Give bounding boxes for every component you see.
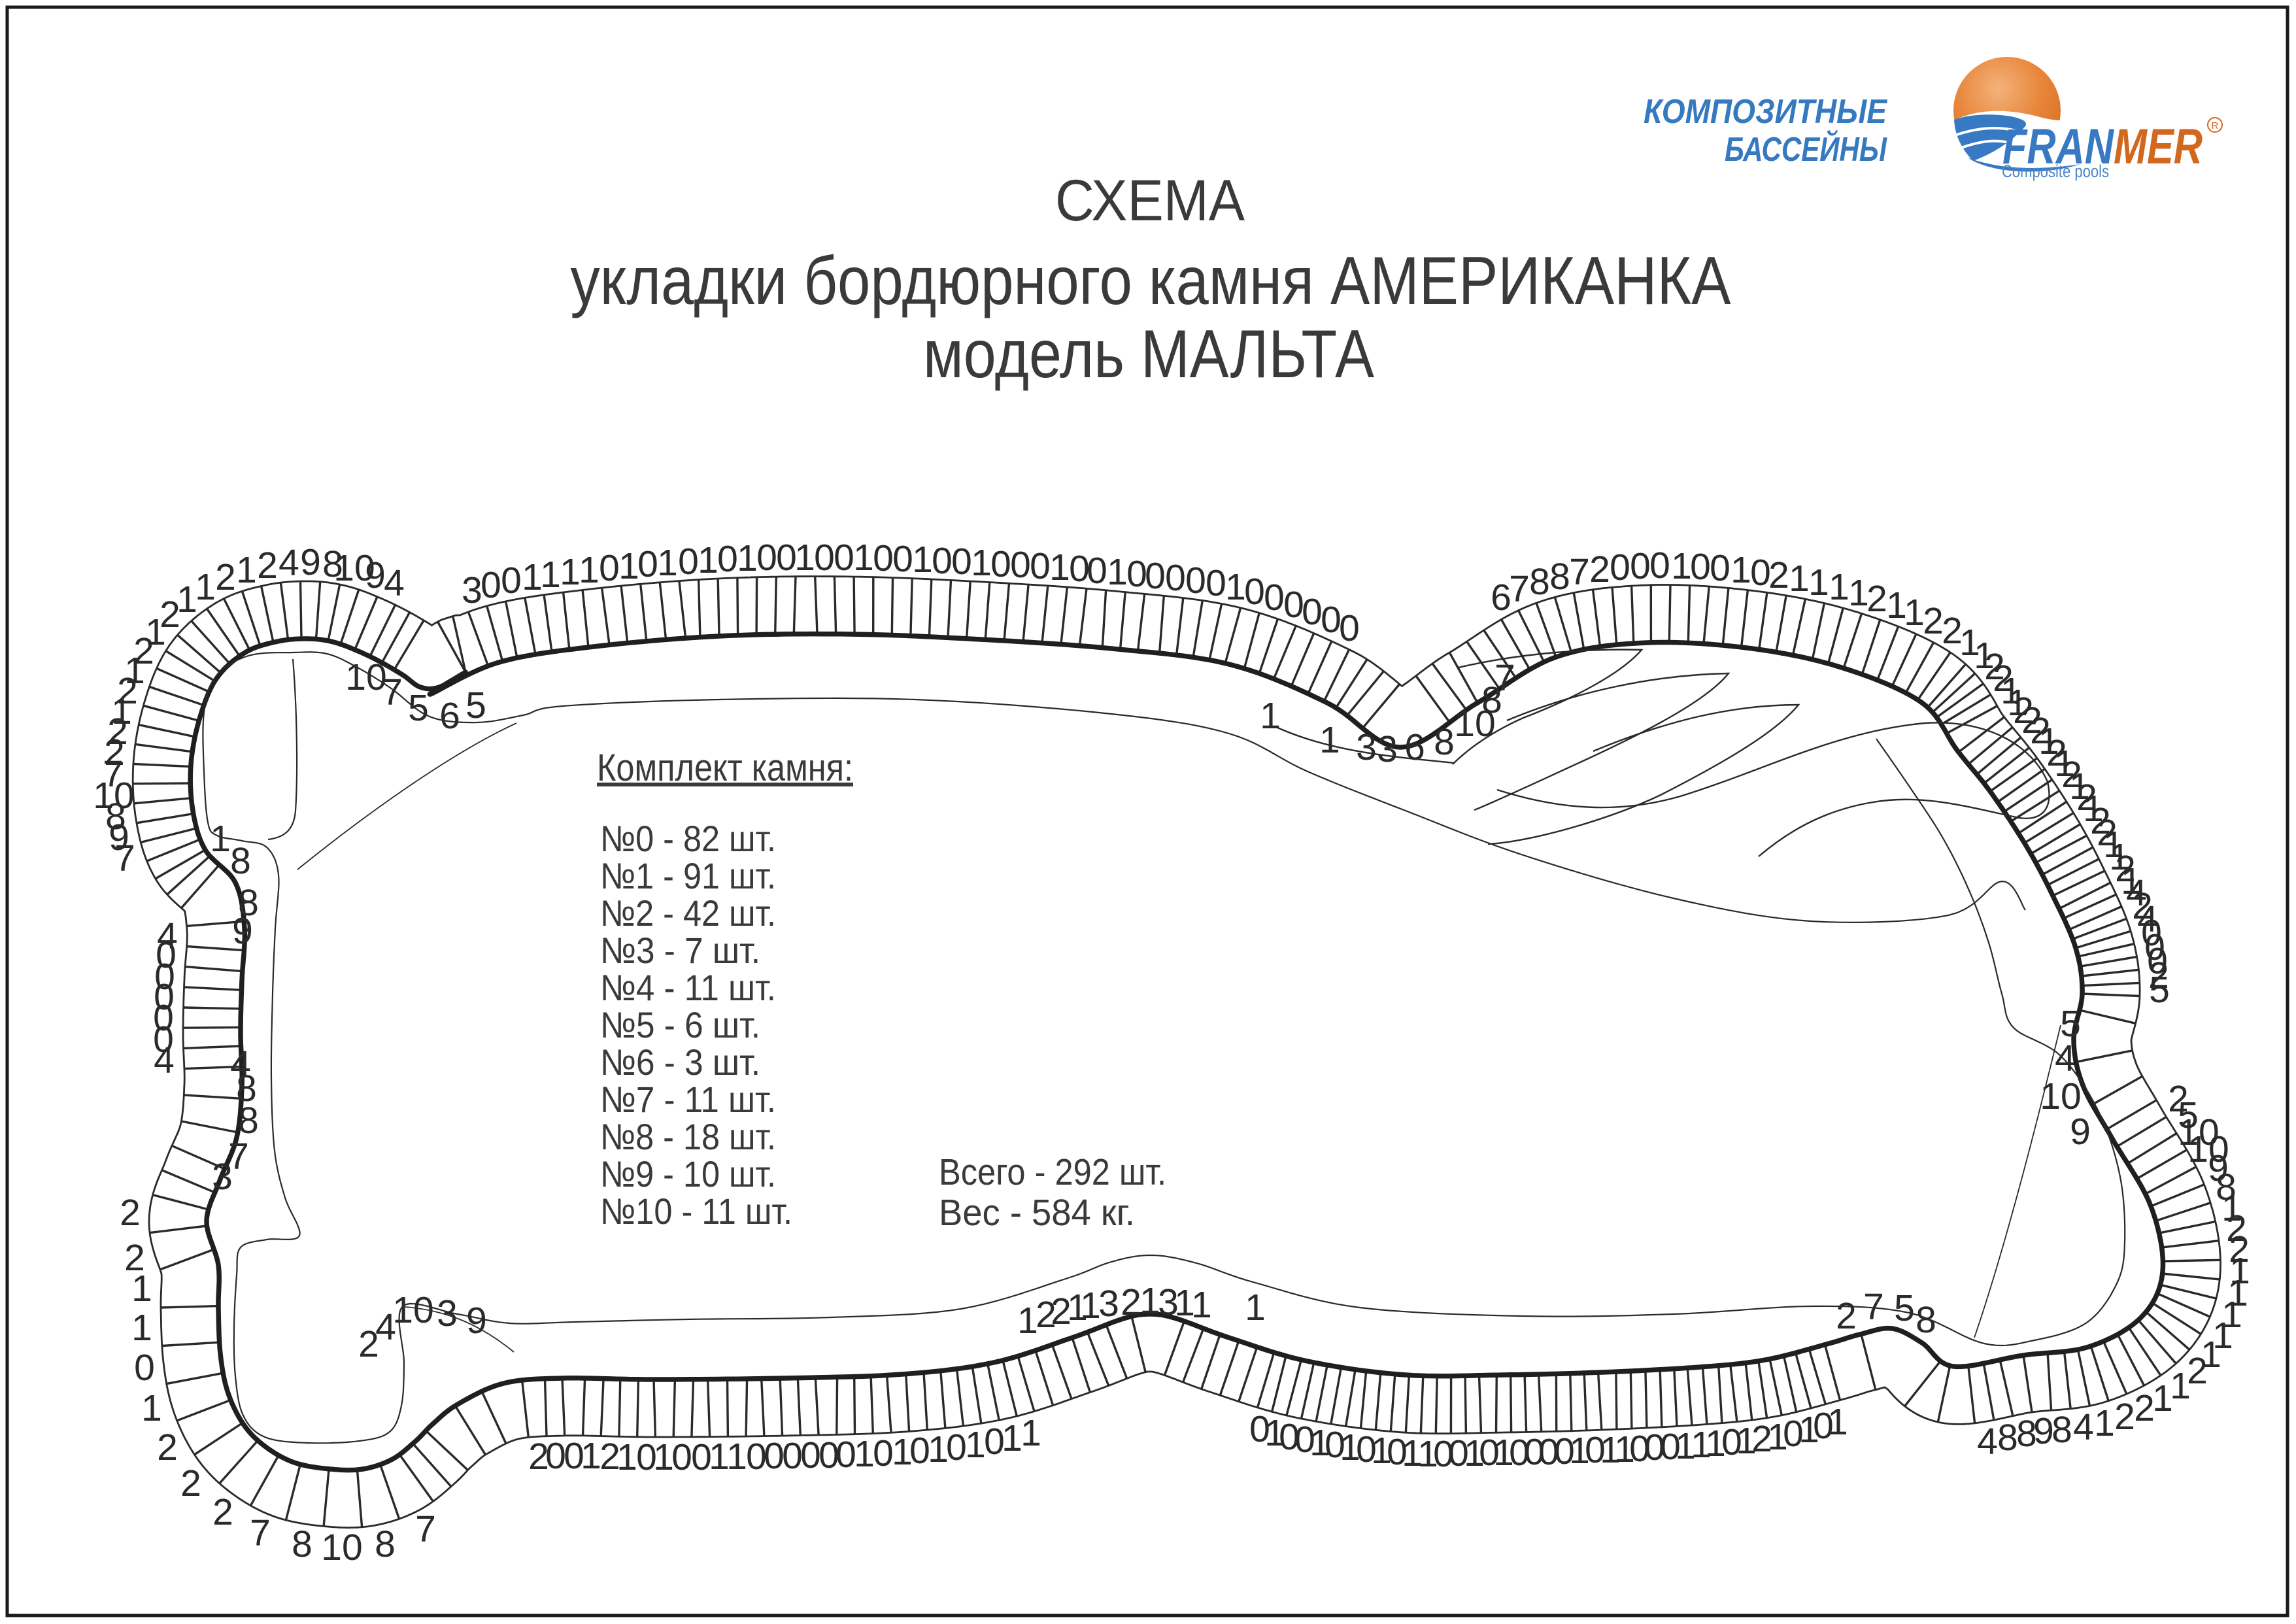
svg-text:R: R [2212,120,2219,131]
svg-text:1: 1 [1808,562,1829,603]
svg-text:1: 1 [794,537,815,579]
svg-text:5: 5 [408,687,429,729]
svg-text:1: 1 [853,537,874,579]
svg-text:0: 0 [1283,584,1304,626]
svg-text:0: 0 [834,537,854,579]
svg-text:9: 9 [2070,1111,2091,1153]
svg-text:0: 0 [1249,1408,1270,1450]
svg-text:2: 2 [528,1436,549,1478]
svg-text:1: 1 [892,1431,913,1473]
svg-text:0: 0 [1339,607,1360,649]
svg-text:1: 1 [522,556,543,598]
svg-text:0: 0 [756,537,777,579]
svg-text:7: 7 [1509,568,1530,610]
svg-text:0: 0 [782,1435,803,1477]
svg-text:1: 1 [2170,1365,2191,1407]
svg-text:0: 0 [990,543,1011,585]
svg-text:СХЕМА: СХЕМА [1055,167,1245,233]
svg-text:0: 0 [764,1435,785,1477]
svg-text:№7 - 11 шт.: №7 - 11 шт. [600,1079,776,1120]
svg-text:1: 1 [1017,1300,1038,1342]
svg-text:№10 - 11 шт.: №10 - 11 шт. [600,1191,792,1232]
svg-text:Комплект камня:: Комплект камня: [597,747,853,789]
svg-text:7: 7 [382,671,403,713]
svg-text:1: 1 [1107,551,1128,593]
svg-text:2: 2 [257,545,278,586]
svg-text:1: 1 [540,554,561,596]
svg-text:5: 5 [2149,969,2170,1011]
svg-text:2: 2 [157,1427,178,1468]
svg-text:№5 - 6 шт.: №5 - 6 шт. [600,1004,760,1045]
svg-text:0: 0 [800,1434,821,1476]
svg-text:4: 4 [384,562,405,604]
svg-text:0: 0 [951,541,972,583]
svg-text:БАССЕЙНЫ: БАССЕЙНЫ [1725,129,1887,169]
svg-text:№3 - 7 шт.: №3 - 7 шт. [600,930,760,971]
svg-text:0: 0 [1750,552,1771,594]
svg-text:0: 0 [481,564,501,606]
svg-text:3: 3 [212,1156,233,1198]
svg-text:0: 0 [1710,547,1730,589]
svg-text:№9 - 10 шт.: №9 - 10 шт. [600,1153,776,1194]
svg-text:1: 1 [195,566,216,608]
svg-text:0: 0 [746,1436,767,1478]
svg-text:0: 0 [909,1430,930,1472]
svg-text:модель МАЛЬТА: модель МАЛЬТА [923,316,1375,392]
svg-text:0: 0 [134,1347,155,1389]
svg-text:8: 8 [1916,1299,1936,1341]
svg-text:1: 1 [210,818,231,860]
svg-text:1: 1 [1080,1285,1101,1327]
svg-text:2: 2 [120,1192,141,1234]
svg-text:0: 0 [599,547,620,589]
svg-text:9: 9 [365,554,386,596]
svg-text:1: 1 [965,1424,986,1466]
svg-text:№8 - 18 шт.: №8 - 18 шт. [600,1116,776,1157]
svg-text:8: 8 [1997,1417,2018,1459]
svg-text:0: 0 [717,538,738,580]
svg-text:6: 6 [1404,726,1425,768]
svg-text:2: 2 [1836,1295,1857,1337]
svg-text:1: 1 [737,537,758,579]
svg-text:1: 1 [1140,1280,1160,1322]
svg-text:1: 1 [928,1429,949,1470]
svg-text:0: 0 [1244,571,1265,613]
svg-text:2: 2 [215,556,236,598]
svg-text:2: 2 [1866,578,1887,620]
svg-text:0: 0 [946,1427,967,1468]
svg-text:0: 0 [1649,545,1670,586]
svg-text:0: 0 [1087,550,1107,592]
svg-text:Composite pools: Composite pools [2002,161,2109,181]
svg-text:7: 7 [1569,551,1590,593]
svg-text:2: 2 [1121,1281,1141,1323]
svg-text:5: 5 [465,685,486,726]
svg-text:3: 3 [1356,726,1377,768]
svg-text:7: 7 [415,1508,436,1550]
svg-text:3: 3 [1098,1283,1119,1325]
svg-text:0: 0 [932,540,953,582]
svg-text:2: 2 [1768,554,1789,596]
svg-text:10: 10 [345,656,386,698]
svg-text:9: 9 [466,1300,487,1342]
svg-text:7: 7 [1494,657,1515,699]
svg-text:0: 0 [819,1434,839,1476]
svg-text:0: 0 [984,1421,1005,1463]
svg-text:1: 1 [1225,566,1246,608]
svg-text:КОМПОЗИТНЫЕ: КОМПОЗИТНЫЕ [1644,93,1887,131]
svg-text:№4 - 11 шт.: №4 - 11 шт. [600,967,776,1008]
svg-text:1: 1 [1904,592,1925,634]
svg-text:1: 1 [1191,1284,1212,1326]
svg-text:0: 0 [1690,546,1711,588]
svg-text:2: 2 [1589,549,1610,590]
svg-text:0: 0 [637,543,658,585]
svg-text:1: 1 [1848,572,1869,614]
svg-text:0: 0 [892,538,913,580]
svg-text:0: 0 [873,537,894,579]
svg-text:№1 - 91 шт.: №1 - 91 шт. [600,855,776,896]
svg-text:8: 8 [230,840,251,882]
svg-text:3: 3 [437,1293,458,1334]
svg-text:2: 2 [1923,600,1944,642]
svg-text:0: 0 [814,537,835,579]
svg-text:1: 1 [726,1436,747,1478]
svg-text:1: 1 [971,542,992,584]
svg-text:2: 2 [599,1436,620,1478]
svg-text:0: 0 [1126,553,1147,595]
svg-text:0: 0 [691,1436,712,1478]
svg-text:0: 0 [1610,547,1630,588]
svg-text:0: 0 [678,541,699,583]
svg-text:1: 1 [1049,547,1070,588]
svg-text:1: 1 [709,1436,730,1478]
svg-text:2: 2 [2134,1387,2155,1429]
svg-text:0: 0 [564,1435,584,1477]
svg-text:8: 8 [1549,556,1570,598]
svg-text:1: 1 [912,539,933,581]
svg-text:укладки бордюрного камня АМЕРИ: укладки бордюрного камня АМЕРИКАНКА [571,243,1732,319]
svg-text:0: 0 [1630,545,1651,587]
svg-text:1: 1 [698,539,718,581]
svg-text:№6 - 3 шт.: №6 - 3 шт. [600,1041,760,1083]
svg-text:0: 0 [1030,545,1051,587]
svg-text:9: 9 [300,541,321,583]
svg-text:0: 0 [1302,591,1323,633]
svg-text:1: 1 [1829,566,1849,608]
svg-text:4: 4 [157,915,178,957]
svg-text:1: 1 [560,551,581,593]
svg-text:Всего - 292 шт.: Всего - 292 шт. [939,1151,1166,1193]
svg-text:0: 0 [501,560,522,601]
svg-text:9: 9 [232,910,253,952]
svg-text:1: 1 [1260,695,1281,737]
svg-text:№0 - 82 шт.: №0 - 82 шт. [600,818,776,859]
svg-text:0: 0 [1165,557,1186,599]
svg-text:1: 1 [177,579,197,620]
svg-text:1: 1 [2094,1402,2115,1444]
svg-text:8: 8 [292,1523,312,1565]
svg-text:4: 4 [2055,1038,2076,1079]
svg-text:5: 5 [1894,1287,1915,1329]
svg-text:0: 0 [1145,555,1166,597]
svg-text:1: 1 [2152,1378,2173,1419]
svg-text:8: 8 [1434,721,1455,763]
svg-text:8: 8 [1529,561,1550,603]
svg-text:1: 1 [1789,558,1810,600]
svg-text:1: 1 [1021,1412,1041,1454]
svg-text:1: 1 [1245,1287,1266,1328]
svg-text:№2 - 42 шт.: №2 - 42 шт. [600,892,776,934]
svg-text:0: 0 [1010,544,1031,586]
svg-text:4: 4 [2073,1406,2094,1448]
svg-text:1: 1 [1671,545,1692,587]
svg-text:7: 7 [250,1512,271,1554]
svg-text:4: 4 [1977,1421,1998,1463]
svg-text:2: 2 [124,1237,145,1279]
svg-text:0: 0 [1185,560,1206,601]
svg-text:6: 6 [439,695,460,737]
svg-text:3: 3 [462,569,482,611]
svg-text:0: 0 [1264,577,1285,618]
svg-text:2: 2 [212,1491,233,1533]
svg-text:2: 2 [180,1463,201,1504]
svg-text:1: 1 [141,1387,162,1429]
svg-text:1: 1 [618,545,639,587]
svg-text:10: 10 [392,1289,433,1331]
svg-text:0: 0 [776,537,797,579]
svg-text:1: 1 [657,542,678,584]
svg-text:1: 1 [579,549,599,591]
svg-text:1: 1 [131,1307,152,1349]
svg-text:0: 0 [1206,562,1226,604]
svg-text:0: 0 [636,1436,657,1478]
svg-text:1: 1 [1002,1417,1022,1459]
svg-text:6: 6 [1491,577,1511,618]
svg-text:10: 10 [321,1527,362,1568]
svg-text:3: 3 [1377,728,1398,770]
svg-text:1: 1 [1730,549,1751,591]
svg-text:Вес - 584 кг.: Вес - 584 кг. [939,1192,1135,1234]
svg-text:7: 7 [1863,1286,1884,1328]
svg-text:8: 8 [2016,1413,2037,1455]
svg-text:4: 4 [279,542,299,584]
svg-text:1: 1 [1319,719,1340,761]
svg-text:8: 8 [375,1523,396,1565]
svg-text:0: 0 [873,1432,894,1474]
svg-text:0: 0 [671,1436,692,1478]
svg-text:2: 2 [2114,1396,2135,1438]
svg-text:0: 0 [1321,599,1342,641]
svg-text:1: 1 [854,1433,875,1475]
svg-text:1: 1 [236,549,257,591]
svg-text:8: 8 [2051,1409,2072,1451]
